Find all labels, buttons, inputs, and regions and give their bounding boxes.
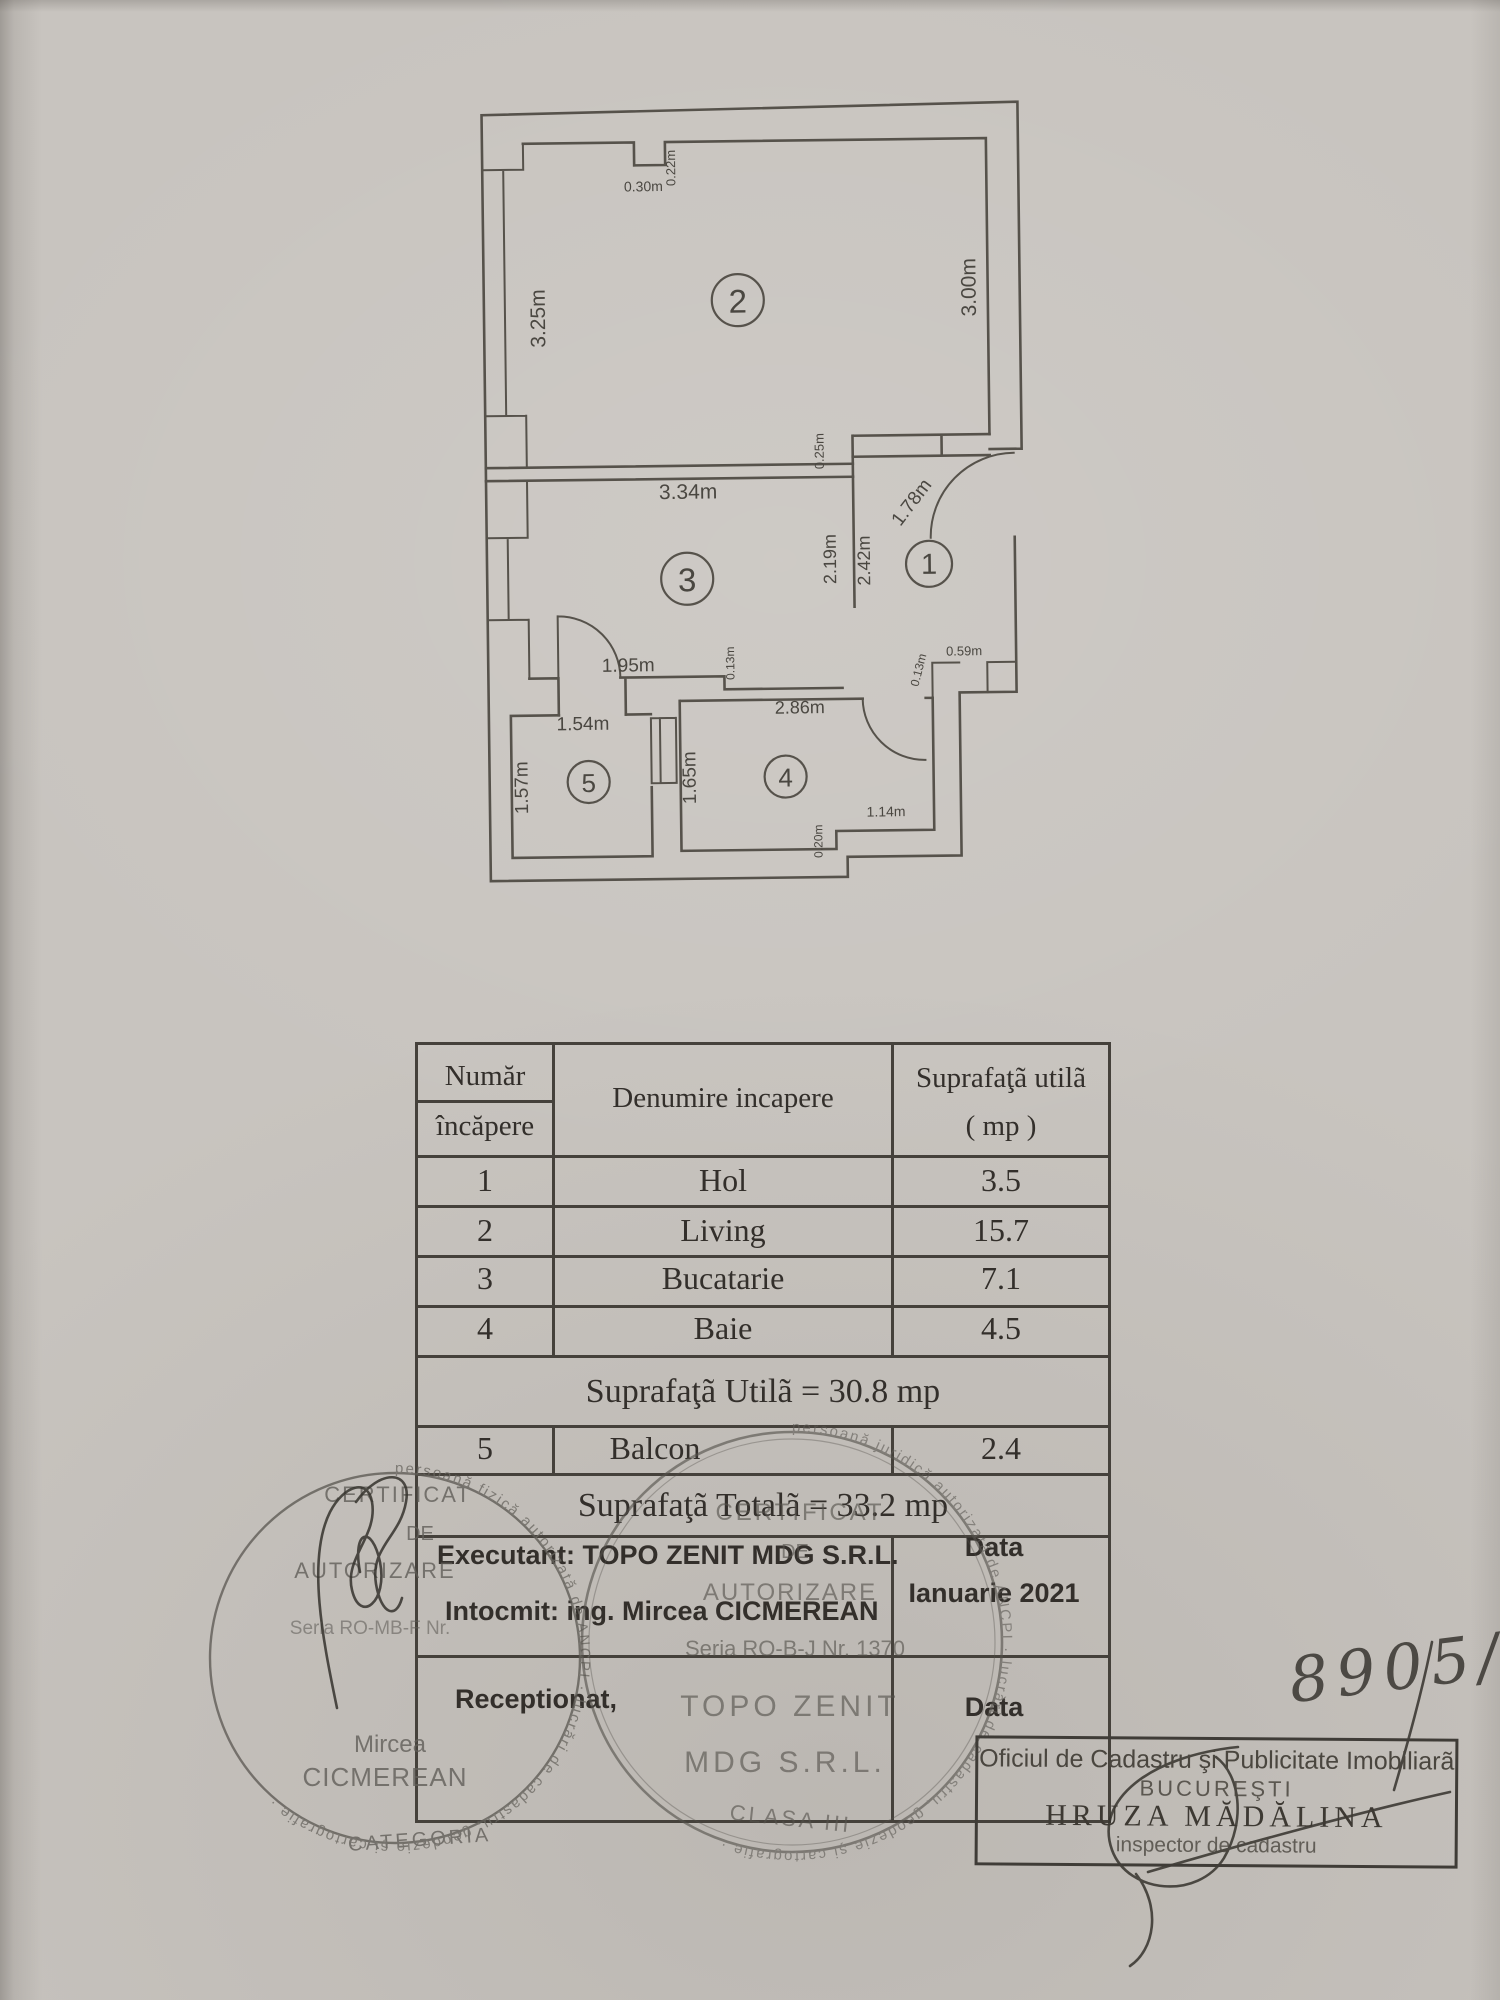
right-stamp-text: AUTORIZARE xyxy=(703,1579,877,1606)
svg-text:persoană fizică autorizată de: persoană fizică autorizată de ANCPI · lu… xyxy=(264,1460,593,1856)
right-stamp-text: CLASA III xyxy=(729,1800,853,1838)
right-round-stamp: persoană juridică autorizată de ANCPI · … xyxy=(582,1419,1015,1865)
left-stamp-text: Mircea xyxy=(354,1731,427,1758)
right-stamp-text: TOPO ZENIT xyxy=(680,1690,899,1723)
right-stamp-text: MDG S.R.L. xyxy=(684,1746,886,1779)
left-stamp-ring-text: persoană fizică autorizată de ANCPI · lu… xyxy=(264,1460,593,1856)
office-stamp-line1: Oficiul de Cadastru şi Publicitate Imobi… xyxy=(978,1744,1455,1776)
left-stamp-text: Seria RO-MB-F Nr. xyxy=(290,1618,450,1639)
left-stamp-text: CERTIFICAT xyxy=(324,1482,472,1507)
stamps-layer: persoană fizică autorizată de ANCPI · lu… xyxy=(0,0,1500,2000)
left-stamp-text: CICMEREAN xyxy=(302,1762,467,1792)
right-stamp-text: CERTIFICAT xyxy=(715,1499,884,1526)
right-stamp-text: DE xyxy=(781,1541,809,1563)
scanned-document-page: 0.30m0.22m3.25m3.00m3.34m0.25m1.78m2.19m… xyxy=(0,0,1500,2000)
left-stamp-text: DE xyxy=(406,1523,434,1545)
left-signature xyxy=(318,1477,407,1708)
office-stamp: Oficiul de Cadastru şi Publicitate Imobi… xyxy=(975,1735,1459,1868)
office-stamp-name: HRUZA MĂDĂLINA xyxy=(978,1798,1455,1835)
right-stamp-text: Seria RO-B-J Nr. 1370 xyxy=(685,1636,905,1661)
office-stamp-line4: inspector de cadastru xyxy=(978,1832,1455,1859)
